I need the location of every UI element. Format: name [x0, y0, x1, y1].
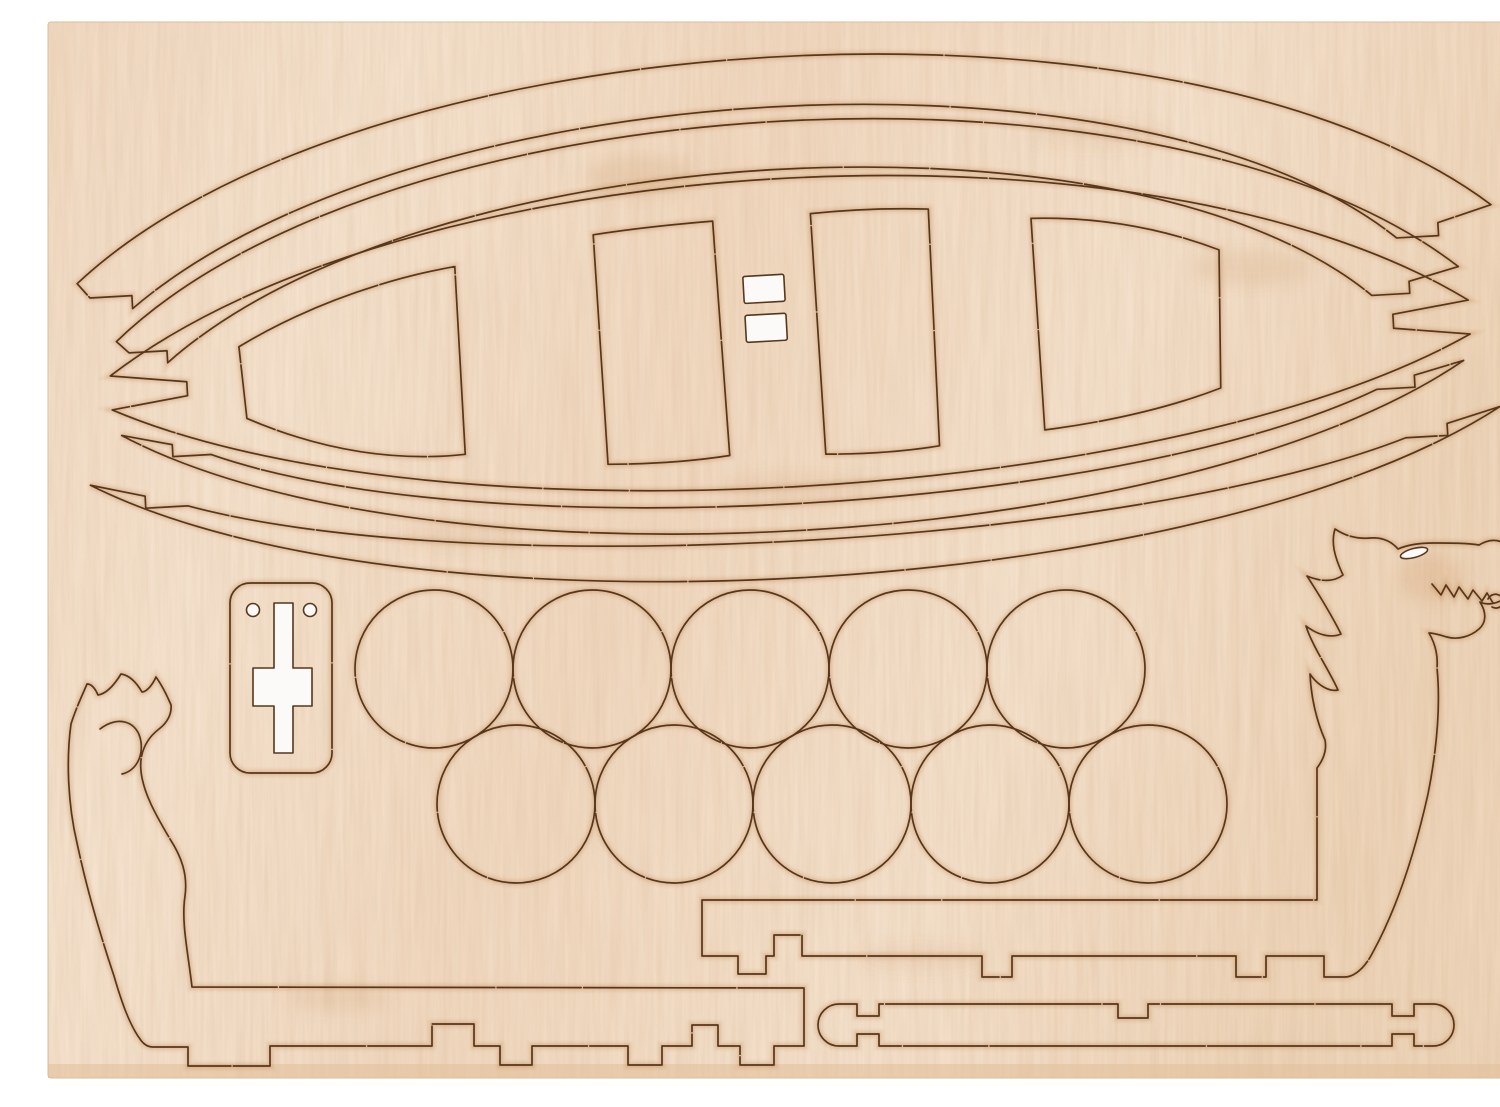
laser-cut-plywood-sheet-photo: Photograph of a light beech laser-cut pl… — [40, 16, 1500, 1091]
plywood-sheet-graphic — [40, 16, 1500, 1091]
scorch-blotch — [1190, 250, 1310, 286]
mast-slot-2 — [745, 313, 787, 342]
mast-slot-1 — [743, 274, 785, 303]
rudder-pilot-hole-1 — [247, 604, 260, 617]
rudder-pilot-hole-2 — [304, 604, 317, 617]
